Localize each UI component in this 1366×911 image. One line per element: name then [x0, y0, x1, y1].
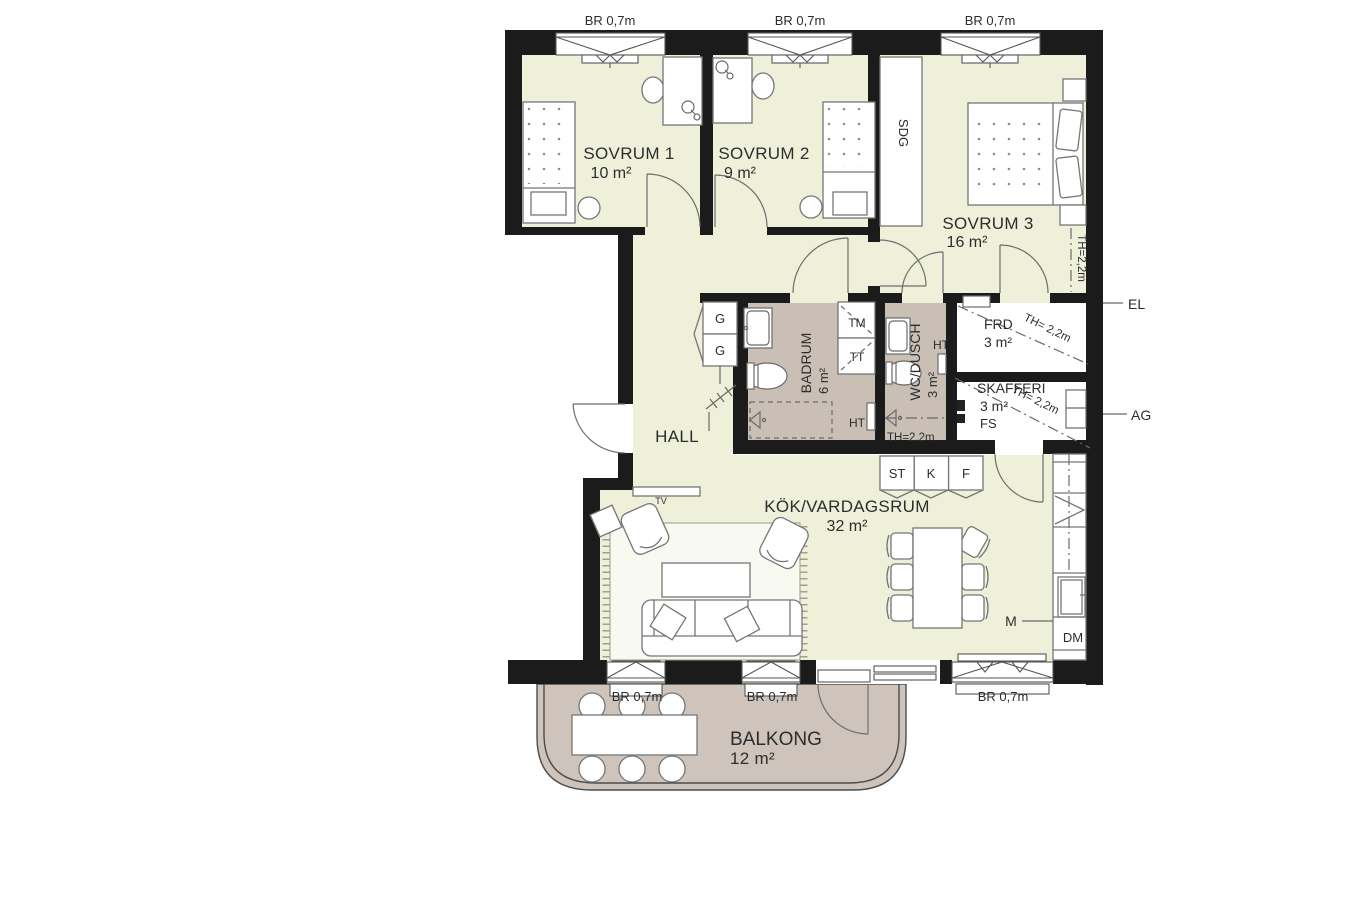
room-label-hall: HALL [655, 427, 699, 446]
desk-icon [713, 58, 752, 123]
desk-chair-icon [642, 77, 664, 103]
dining-chair-icon [962, 595, 988, 621]
window-label: BR 0,7m [612, 689, 663, 704]
room-area-sovrum3: 16 m² [947, 234, 989, 251]
room-label-badrum: BADRUM [798, 333, 814, 394]
dining-table-icon [913, 528, 962, 628]
stool-icon [800, 196, 822, 218]
label-tt: TT [850, 350, 865, 364]
dining-chair-icon [962, 564, 988, 590]
fs-box-icon [957, 400, 965, 411]
ag-unit-icon [1066, 390, 1086, 428]
label-ag: AG [1131, 407, 1151, 423]
window-label: BR 0,7m [978, 689, 1029, 704]
towel-warmer-icon [938, 354, 946, 374]
room-label-balkong: BALKONG [730, 729, 822, 750]
room-area-sovrum2: 9 m² [724, 165, 757, 182]
dining-chair-icon [887, 595, 913, 621]
label-tm: TM [848, 316, 865, 330]
label-th220-frd: TH= 2,2m [1022, 312, 1073, 345]
floorplan-canvas: BR 0,7m BR 0,7m BR 0,7m BR 0,7m BR 0,7m … [0, 0, 1366, 911]
entrance-door [573, 404, 633, 453]
room-area-kok: 32 m² [827, 518, 869, 535]
label-el: EL [1128, 296, 1145, 312]
el-cabinet-icon [963, 296, 990, 307]
balcony-furniture [572, 693, 697, 782]
dining-chair-icon [887, 564, 913, 590]
window-kitchen [952, 654, 1053, 694]
label-g: G [715, 311, 725, 326]
room-label-sovrum2: SOVRUM 2 [718, 144, 809, 163]
coffee-table-icon [662, 563, 750, 597]
label-th220-sovrum3: TH=2,2m [1075, 234, 1087, 282]
fs-box-icon [957, 414, 965, 423]
room-area-sovrum1: 10 m² [591, 165, 633, 182]
label-k: K [927, 466, 936, 481]
balcony [537, 684, 906, 790]
towel-warmer-icon [867, 403, 875, 430]
room-area-skafferi: 3 m² [980, 398, 1008, 414]
balcony-table [572, 715, 697, 755]
window-label: BR 0,7m [775, 13, 826, 28]
sofa-icon [642, 600, 802, 656]
label-ht: HT [849, 416, 866, 430]
room-area-frd: 3 m² [984, 334, 1012, 350]
window-label: BR 0,7m [585, 13, 636, 28]
window-label: BR 0,7m [965, 13, 1016, 28]
floorplan-page: BR 0,7m BR 0,7m BR 0,7m BR 0,7m BR 0,7m … [0, 0, 1366, 911]
label-sdg: SDG [896, 119, 911, 147]
nightstand-icon [1060, 205, 1086, 225]
label-fs: FS [980, 416, 997, 431]
room-area-wc: 3 m² [925, 371, 940, 398]
label-g: G [715, 343, 725, 358]
room-area-badrum: 6 m² [816, 367, 831, 394]
window-label: BR 0,7m [747, 689, 798, 704]
sink-icon [744, 308, 772, 348]
label-tv: TV [655, 496, 667, 506]
desk-chair-icon [752, 73, 774, 99]
desk-icon [663, 57, 702, 125]
label-ht: HT [933, 338, 950, 352]
room-label-sovrum3: SOVRUM 3 [942, 214, 1033, 233]
dining-set [887, 525, 992, 628]
nightstand-icon [1063, 79, 1086, 101]
frd-fixtures [958, 296, 1088, 364]
room-label-sovrum1: SOVRUM 1 [583, 144, 674, 163]
label-dm: DM [1063, 630, 1083, 645]
toilet-icon [747, 363, 787, 389]
label-m: M [1005, 613, 1017, 629]
dining-chair-icon [887, 533, 913, 559]
stool-icon [578, 197, 600, 219]
room-area-balkong: 12 m² [730, 749, 775, 768]
room-label-frd: FRD [984, 316, 1013, 332]
label-st: ST [889, 466, 906, 481]
leader-lines [1103, 303, 1127, 414]
label-f: F [962, 466, 970, 481]
room-label-kok: KÖK/VARDAGSRUM [764, 497, 929, 516]
tv-bench-icon [633, 487, 700, 496]
room-label-wc: WC/DUSCH [907, 324, 923, 401]
label-th220-wc: TH=2,2m [887, 432, 935, 444]
